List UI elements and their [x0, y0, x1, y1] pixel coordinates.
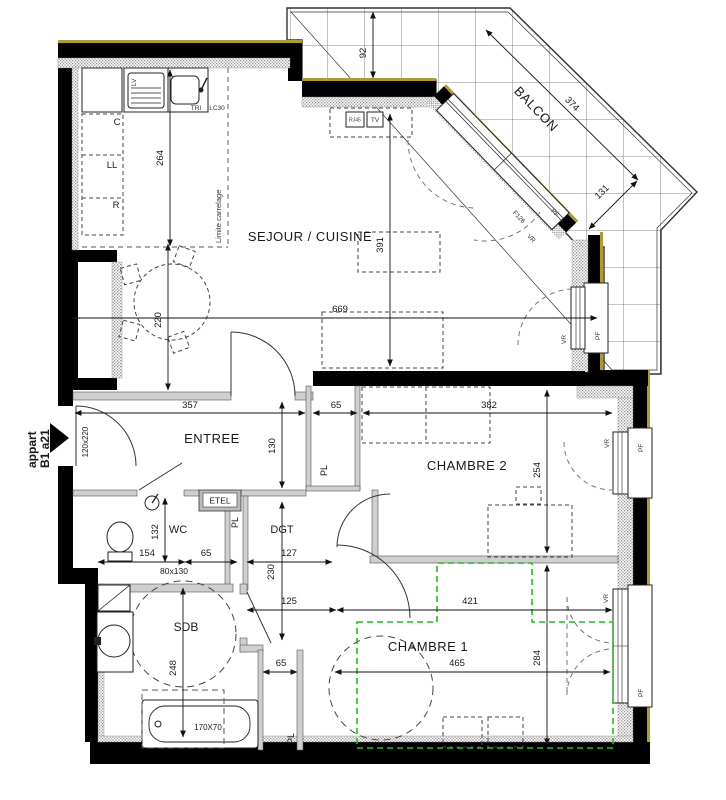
interior-walls	[73, 371, 618, 750]
appliance-column	[82, 114, 123, 235]
dim-pl-entree-width: 65	[201, 548, 212, 559]
dim-balcony-depth: 92	[358, 48, 369, 59]
bathtub-size-label: 170X70	[194, 723, 222, 732]
washbasin	[98, 625, 130, 657]
sejour-label: SEJOUR / CUISINE	[248, 229, 372, 244]
chambre1-window: VR PF	[567, 585, 652, 707]
bay-vr-label: VR	[525, 233, 537, 245]
dim-wc-width: 154	[139, 548, 155, 559]
sejour-window-vr-label: VR	[561, 335, 568, 344]
sofa	[322, 312, 443, 368]
dim-wc-size: 80x130	[160, 566, 188, 576]
pl-chambre1-label: PL	[286, 733, 296, 744]
chambre2-label: CHAMBRE 2	[427, 458, 507, 473]
chambre1-window-pf-label: PF	[638, 689, 645, 697]
dim-wc-depth: 132	[150, 524, 161, 540]
pl-chambre2-label: PL	[319, 465, 329, 476]
dim-sejour-mid: 391	[375, 237, 386, 253]
dim-entree-depth: 130	[267, 438, 278, 454]
balcony-tiles	[280, 0, 726, 390]
pl-entree-label: PL	[230, 517, 240, 528]
sejour-door-swing	[231, 332, 295, 396]
dim-pl2-width: 65	[331, 400, 342, 411]
etel-label: ETEL	[209, 496, 231, 506]
chambre2-window-vr-label: VR	[604, 439, 611, 448]
dgt-label: DGT	[270, 524, 294, 536]
kitchen-sink	[171, 76, 199, 104]
apartment-name-line2: B1 a21	[38, 429, 52, 468]
tv-label: TV	[371, 117, 380, 124]
floor-plan-page: BALCON	[0, 0, 726, 800]
entree-label: ENTREE	[184, 431, 240, 446]
chambre1-window-vr-label: VR	[603, 594, 610, 603]
entry-arrow-icon	[50, 423, 69, 453]
appliance-ll-label: LL	[107, 160, 118, 171]
toilet	[107, 522, 133, 552]
sdb-door-leaf	[247, 592, 271, 643]
dim-entry-door: 120x220	[81, 426, 90, 457]
bearing-wall-chambre2	[313, 371, 585, 386]
bay-ref-label: F126	[511, 210, 527, 226]
chambre2-door-swing	[337, 494, 390, 547]
dim-kitchen-depth: 264	[155, 150, 166, 166]
dim-chambre2-depth: 254	[532, 462, 543, 478]
dim-dgt-width: 127	[281, 548, 297, 559]
chambre2-window: VR PF	[564, 428, 652, 498]
dim-chambre1-width: 465	[449, 658, 465, 669]
dim-sdb-depth: 248	[168, 660, 179, 676]
chambre2-bed	[488, 505, 572, 557]
dim-pl1-width: 65	[276, 658, 287, 669]
dim-chambre1-depth: 284	[532, 650, 543, 666]
tri-label: TRI	[191, 105, 202, 112]
apartment-name-line1: appart	[25, 431, 39, 468]
chambre1-green-zone	[357, 563, 613, 748]
etel-unit: ETEL	[199, 490, 241, 511]
limite-carrelage-label: Limite carrelage	[214, 190, 223, 243]
wc-door-leaf	[139, 463, 182, 490]
dishwasher-label: LV	[131, 78, 138, 86]
dim-dgt-passage: 125	[281, 596, 297, 607]
dim-sejour-left: 220	[153, 312, 164, 328]
dining-table	[134, 264, 210, 340]
chambre2-window-pf-label: PF	[638, 444, 645, 452]
sejour-window-pf-label: PF	[595, 332, 602, 340]
chambre2-nightstand	[516, 487, 541, 504]
dim-chambre1-inner: 421	[462, 596, 478, 607]
appliance-r-label: R	[113, 200, 120, 211]
chambre1-label: CHAMBRE 1	[388, 639, 468, 654]
balcony: BALCON	[280, 0, 726, 390]
lc30-label: LC30	[209, 105, 225, 112]
bay-door-swing-left	[408, 140, 476, 208]
appliance-c-label: C	[114, 117, 121, 128]
dim-dgt-length: 230	[266, 564, 277, 580]
floor-plan-drawing: BALCON	[0, 0, 726, 800]
apartment-marker: appart B1 a21	[25, 423, 69, 468]
sdb-label: SDB	[174, 620, 199, 634]
dim-entree-width: 357	[182, 400, 198, 411]
dim-sejour-width: 669	[332, 304, 348, 315]
wc-label: WC	[169, 524, 187, 536]
dim-chambre2-width: 382	[481, 400, 497, 411]
rj45-label: RJ45	[349, 118, 361, 124]
